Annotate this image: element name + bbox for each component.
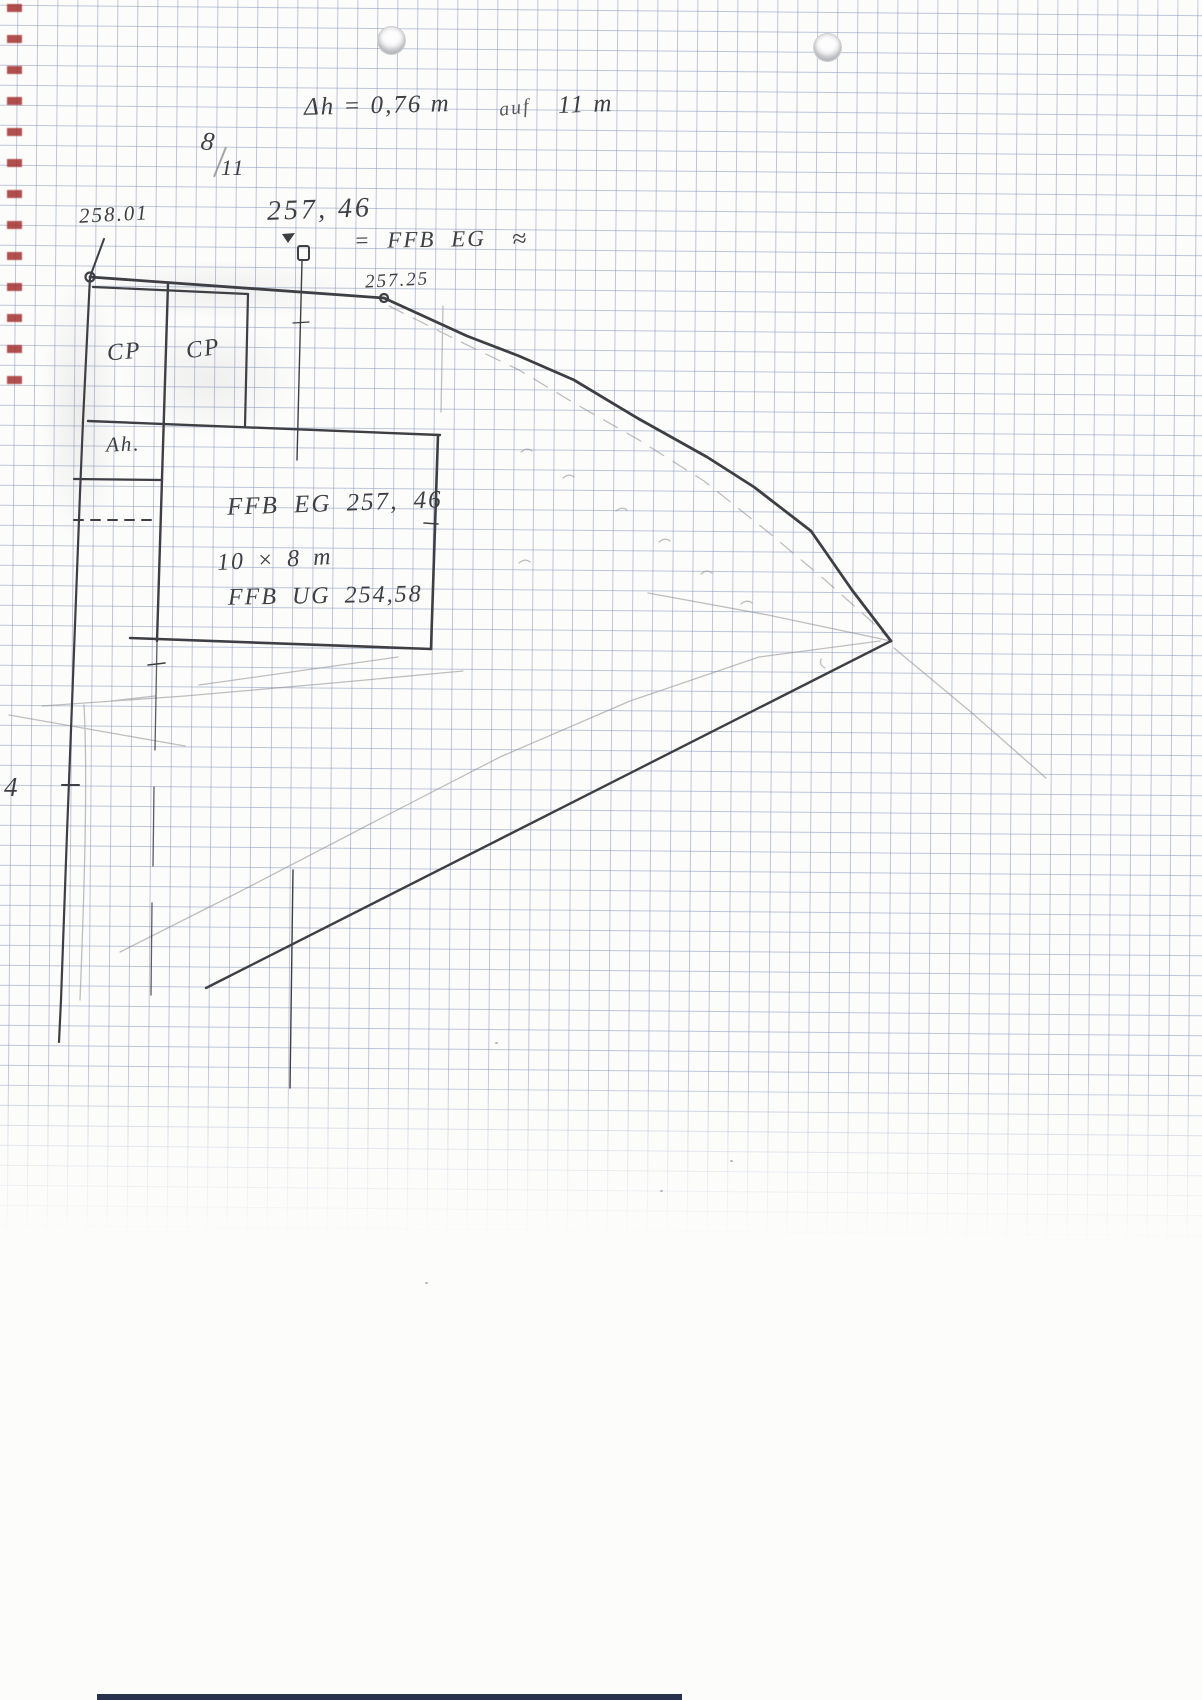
pencil-hook-marks [519, 449, 825, 668]
building-left-extension [151, 641, 157, 995]
elevation-equals-ffb-eg: = FFB EG [354, 227, 486, 252]
carport-right-edge [245, 294, 248, 426]
square-marker [298, 246, 309, 260]
scan-edge-strip [97, 1694, 682, 1700]
speck [495, 1042, 498, 1044]
pencil-terrain-mid [42, 671, 463, 706]
building-right-edge [431, 435, 438, 649]
building-ffb-ug: FFB UG 254,58 [228, 582, 423, 609]
fraction-denominator: 11 [221, 157, 245, 179]
note-span-length: 11 m [558, 91, 614, 118]
marker-plumb-lower [290, 870, 293, 1088]
pencil-below-building-a [199, 657, 398, 685]
building-right-tick [424, 523, 438, 524]
sketch-drawing [0, 0, 1202, 1700]
pencil-line-past-tip [894, 648, 1046, 778]
elevation-fence-point: 257.25 [365, 269, 430, 291]
carport-label-left: CP [106, 339, 143, 366]
speck [660, 1190, 663, 1192]
corner-tick [90, 239, 104, 277]
triangle-marker [282, 233, 295, 243]
note-delta-h: Δh = 0,76 m [304, 91, 451, 120]
scanned-sketch-sheet: Δh = 0,76 m auf 11 m 8 11 258.01 257, 46… [0, 0, 1202, 1700]
marker-plumb-tick [293, 322, 309, 323]
elevation-corner: 258.01 [78, 202, 149, 227]
pencil-left-lower [9, 715, 185, 746]
pencil-terrain-arc-low [120, 641, 880, 952]
building-top-edge [88, 421, 440, 435]
pencil-boundary-double [80, 705, 86, 1000]
building-dimensions: 10 × 8 m [216, 545, 333, 575]
margin-number: 4 [4, 774, 20, 801]
carport-divider [157, 284, 168, 641]
elevation-point: 257, 46 [267, 194, 373, 226]
pencil-line-to-tip [648, 593, 891, 641]
pencil-terrain-under-curve [389, 306, 887, 637]
annex-bottom-edge [74, 479, 162, 480]
pencil-vertical-short [441, 306, 443, 412]
approx-symbol: ≈ [511, 225, 530, 253]
south-boundary-line [206, 641, 891, 988]
carport-top-edge [93, 287, 248, 294]
north-boundary-curve [90, 277, 891, 641]
annex-label: Ah. [106, 433, 141, 455]
speck [730, 1160, 733, 1162]
left-boundary-line [59, 277, 90, 1042]
speck [425, 1282, 428, 1284]
note-auf: auf [498, 96, 532, 120]
building-bottom-edge [130, 638, 431, 649]
carport-label-right: CP [184, 335, 222, 364]
